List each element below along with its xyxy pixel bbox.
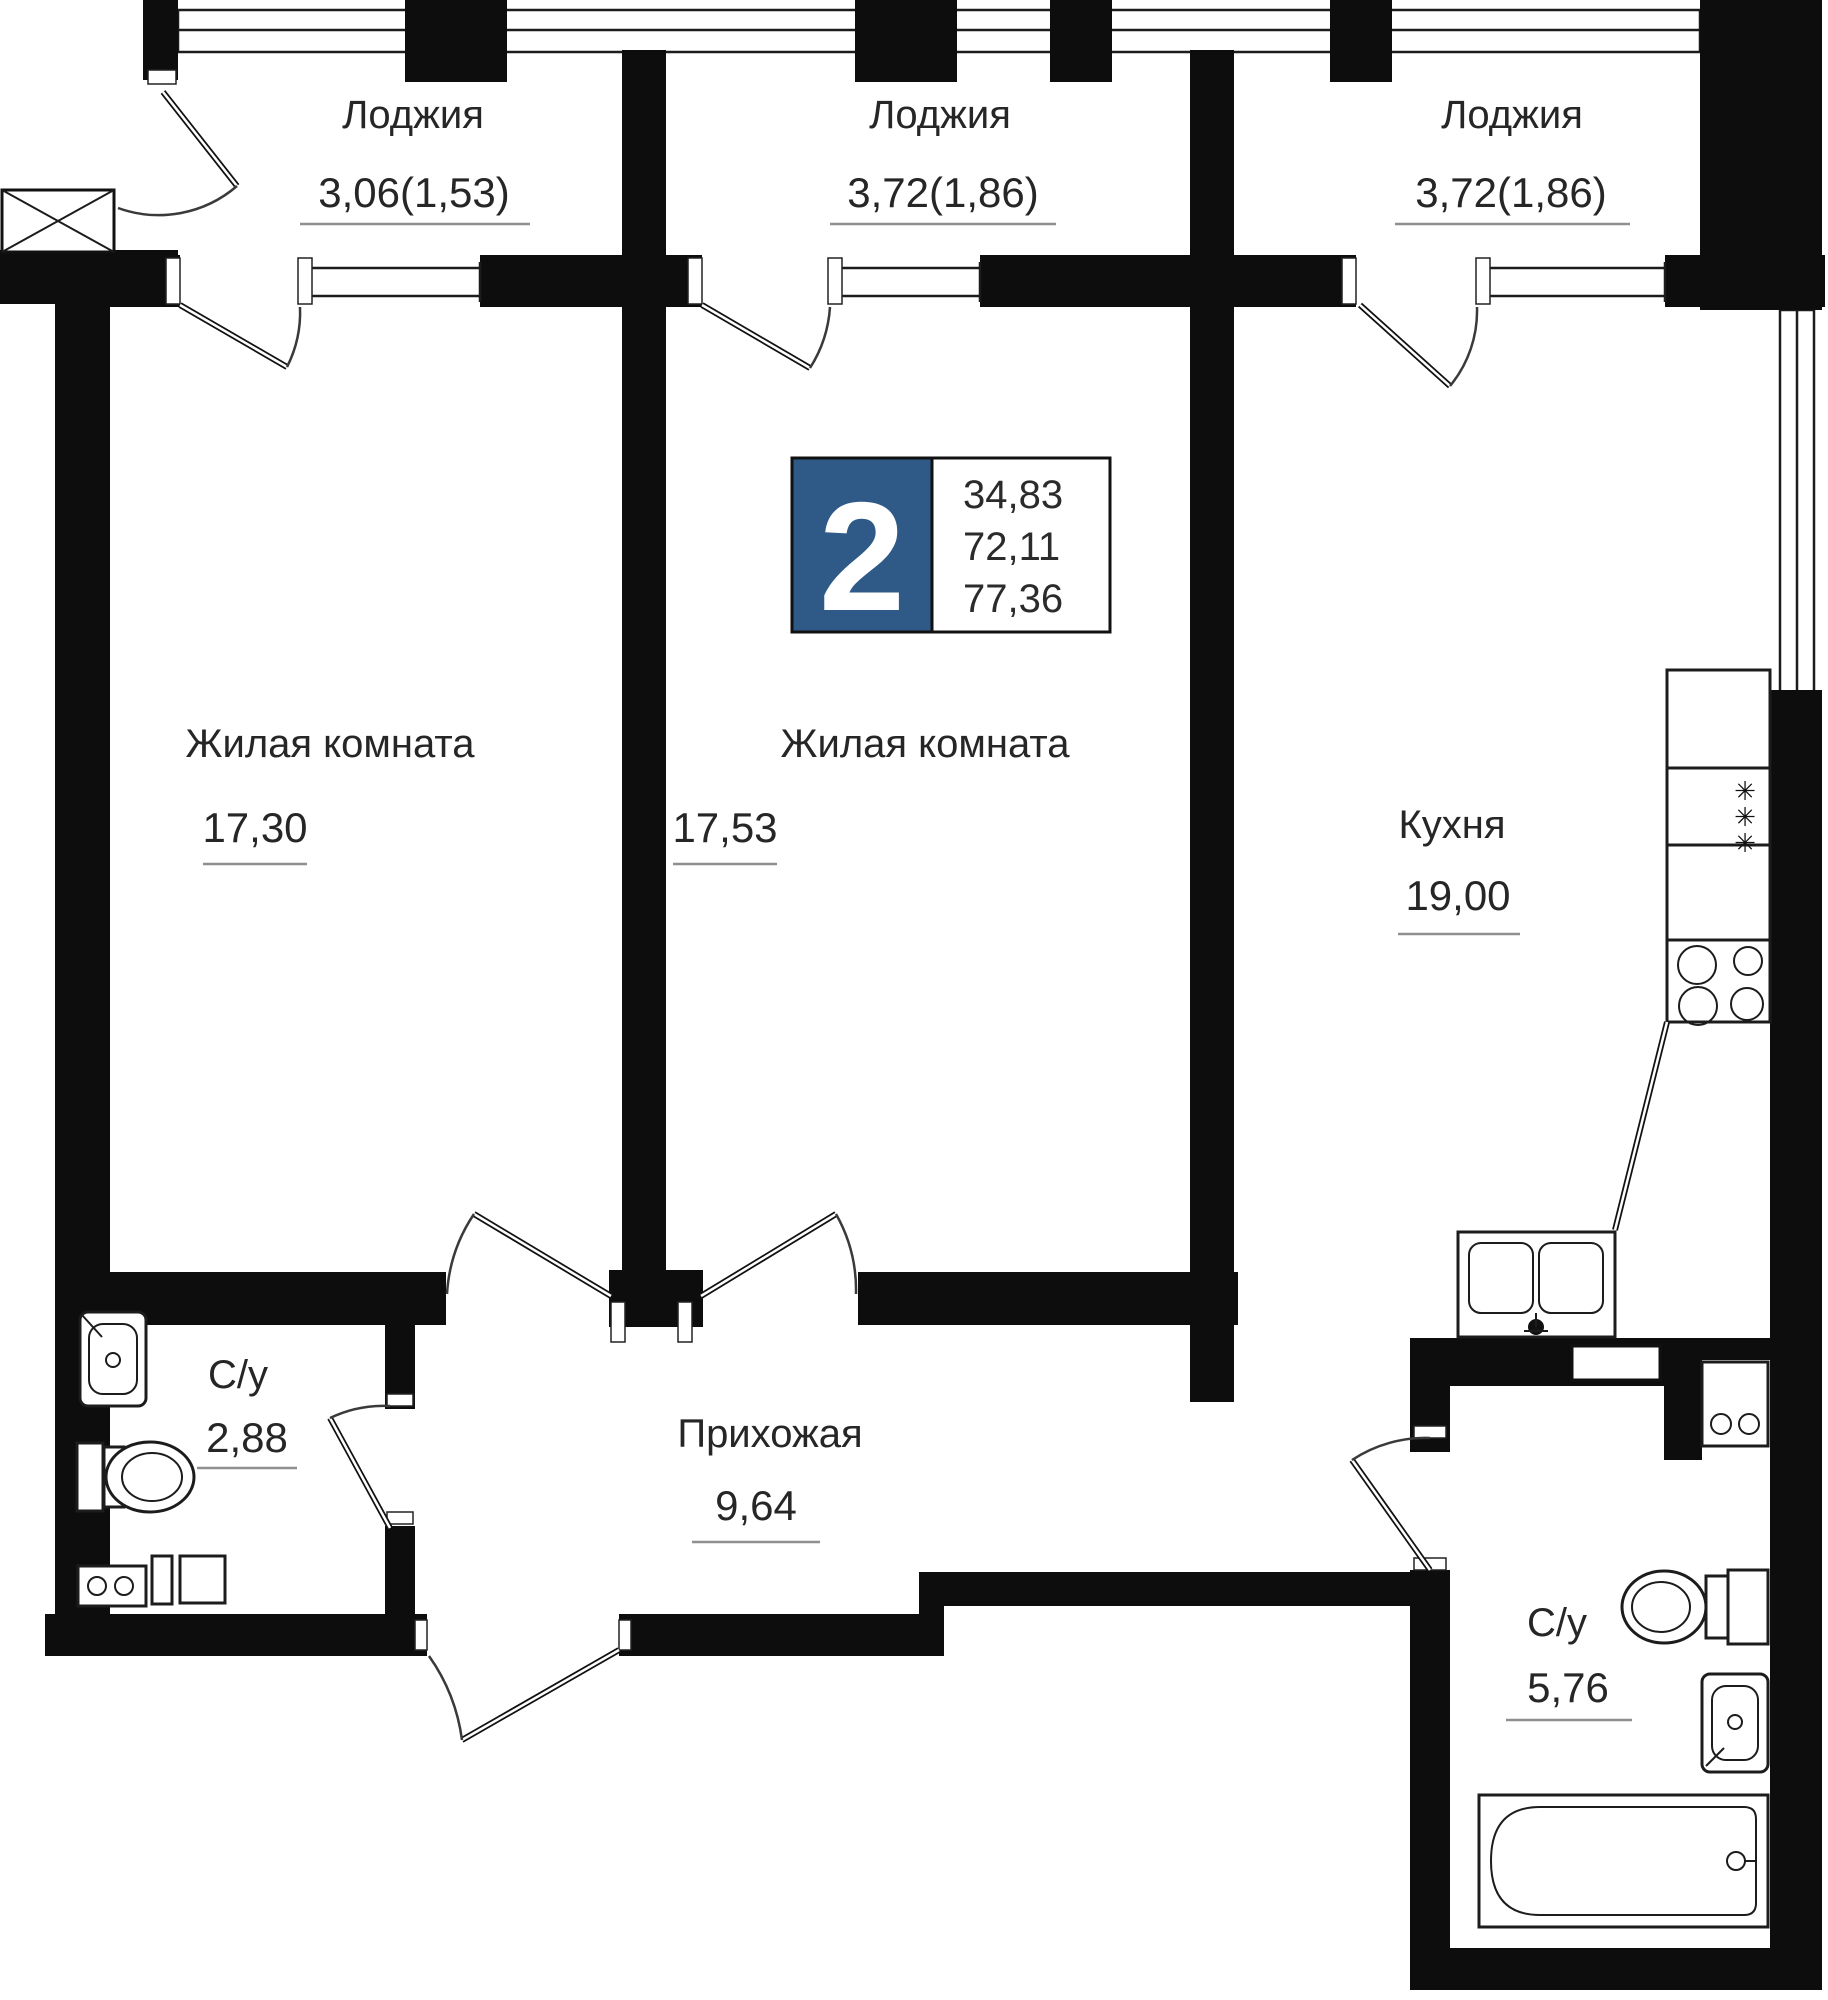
right-window-glazing [1780,310,1814,692]
window-loggia1 [300,262,480,302]
bottom-wall [930,1572,1414,1606]
room-area: 17,30 [202,804,307,851]
washing-machine-icon [78,1566,146,1606]
room-area: 3,72(1,86) [1415,169,1606,216]
toilet-icon [1622,1570,1768,1644]
loggia-divider [1190,50,1234,257]
room-name: С/у [208,1353,268,1397]
wall-segment [1664,1338,1770,1360]
wall-segment [385,1526,415,1616]
label-living-2: Жилая комната 17,53 [672,722,1070,864]
room-area: 3,72(1,86) [847,169,1038,216]
entry-door [429,1650,619,1740]
room-name: Жилая комната [781,722,1071,766]
label-kitchen: Кухня 19,00 [1398,803,1520,934]
bottom-wall [45,1614,427,1656]
label-loggia-1: Лоджия 3,06(1,53) [300,93,530,224]
loggia2-balcony-door [702,305,830,368]
loggia1-side-door [118,92,237,215]
wall-room1-room2 [622,307,666,1272]
bathroom2-door [1352,1438,1430,1570]
bathroom2-fixtures [1479,1362,1768,1927]
apartment-type-badge: 2 34,83 72,11 77,36 [792,458,1110,643]
wall-segment [480,255,702,307]
doors [118,92,1477,1740]
window-loggia3 [1478,262,1665,302]
wall-segment [143,0,178,80]
room-name: Кухня [1398,803,1505,847]
room-name: Прихожая [677,1412,862,1456]
wall-segment [1410,1570,1450,1990]
room-area: 17,53 [672,804,777,851]
floor-plan-canvas: ✳ ✳ ✳ [0,0,1828,2000]
wall-segment [858,1272,1238,1325]
washing-machine-icon [1702,1362,1768,1446]
counter-edge [1615,1022,1667,1230]
label-hallway: Прихожая 9,64 [677,1412,862,1542]
kitchen-cabinet [1667,845,1770,940]
wall-segment [1050,0,1112,82]
loggia1-balcony-door [180,305,300,367]
right-exterior-wall [1770,690,1822,1990]
room-labels: Лоджия 3,06(1,53) Лоджия 3,72(1,86) Лодж… [186,93,1632,1720]
floor-plan-page: ✳ ✳ ✳ [0,0,1828,2000]
room-area: 3,06(1,53) [318,169,509,216]
wall-segment [1238,255,1356,307]
sink-icon [1702,1674,1768,1772]
label-bathroom-2: С/у 5,76 [1506,1601,1632,1720]
label-bathroom-1: С/у 2,88 [197,1353,297,1468]
bathroom1-door [330,1406,390,1528]
room2-door [701,1214,856,1296]
wall-segment [1665,255,1825,307]
room-name: Лоджия [869,93,1011,137]
room-area: 19,00 [1405,872,1510,919]
room-area: 2,88 [206,1414,288,1461]
room-name: С/у [1527,1601,1587,1645]
kitchen-sink [1458,1232,1615,1337]
room-name: Лоджия [342,93,484,137]
sink-icon [80,1312,146,1406]
badge-rooms-count: 2 [819,470,905,643]
badge-area-no-loggia: 72,11 [963,525,1060,569]
shaft-box [2,190,114,252]
window-loggia2 [830,262,980,302]
room-area: 5,76 [1527,1664,1609,1711]
wall-segment [855,0,957,82]
room-name: Жилая комната [186,722,476,766]
label-loggia-2: Лоджия 3,72(1,86) [830,93,1056,224]
wall-room2-kitchen [1190,307,1234,1402]
loggia3-balcony-door [1360,305,1477,386]
loggia-divider [622,50,666,257]
snowflake-icon: ✳ [1734,828,1756,858]
bottom-wall [619,1614,939,1656]
kitchen-fixtures: ✳ ✳ ✳ [1458,670,1770,1380]
cabinet-box [180,1556,225,1603]
badge-area-total: 77,36 [963,577,1063,621]
bathtub-icon [1479,1795,1768,1927]
room-area: 9,64 [715,1482,797,1529]
duct-box [1572,1346,1660,1380]
left-exterior-wall [55,250,110,1614]
badge-area-living: 34,83 [963,473,1063,517]
wall-segment [980,255,1238,307]
label-living-1: Жилая комната 17,30 [186,722,476,864]
wall-segment [1330,0,1392,82]
toilet-icon [77,1442,194,1512]
kitchen-cabinet [1667,670,1770,768]
room1-door [447,1214,611,1296]
wall-segment [405,0,507,82]
bottom-wall [1410,1948,1822,1990]
cabinet-box [152,1556,172,1604]
room-name: Лоджия [1441,93,1583,137]
label-loggia-3: Лоджия 3,72(1,86) [1395,93,1630,224]
